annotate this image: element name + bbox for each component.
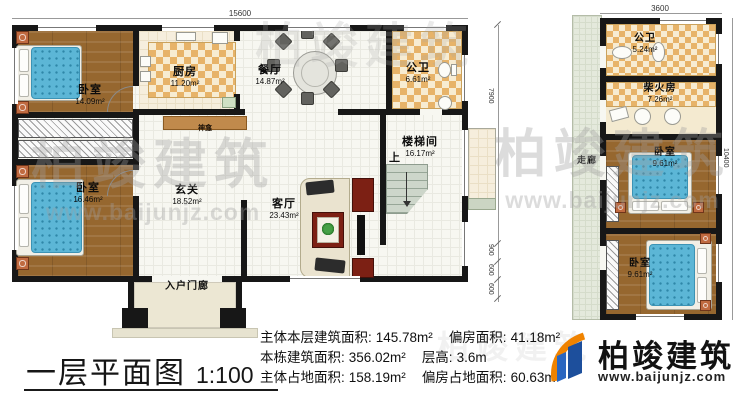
window (660, 18, 706, 24)
pillow (19, 217, 29, 247)
plan-scale: 1:100 (196, 362, 254, 388)
stove-burner (664, 108, 681, 125)
stats-row: 主体占地面积:158.19m²偏房占地面积:60.63m² (260, 368, 576, 388)
wall (133, 109, 245, 115)
dimension-label: 3600 (620, 4, 700, 13)
room-label-corridor: 走廊 (577, 153, 597, 166)
stair-up-arrow-icon (406, 172, 407, 202)
wall (241, 200, 247, 282)
window (162, 25, 214, 31)
dimension-label: 15600 (200, 9, 280, 18)
room-label-bedroom2: 卧室 16.46m² (53, 182, 123, 205)
dimension-line (600, 13, 722, 14)
fridge (212, 32, 228, 44)
door-opening (600, 46, 606, 68)
window (462, 130, 468, 196)
window (12, 186, 18, 250)
brand-url: www.baijunjz.com (598, 369, 726, 384)
room-label-side-bedroom3: 卧室 9.61m² (630, 147, 700, 169)
tv-cabinet (352, 178, 374, 212)
wall (600, 76, 722, 82)
shrine-label: 神龛 (198, 125, 212, 132)
room-label-bath: 公卫 6.61m² (383, 62, 453, 85)
plan-title-text: 一层平面图 (26, 357, 186, 390)
pillow (19, 49, 29, 72)
tv-screen (357, 215, 365, 255)
corridor-floor (572, 15, 602, 320)
window (716, 244, 722, 282)
dimension-line (12, 18, 468, 19)
shrine-cabinet: 神龛 (163, 116, 247, 130)
room-label-dining: 餐厅 14.87m² (235, 64, 305, 87)
window (288, 25, 350, 31)
wall (380, 115, 386, 245)
brand-logo-icon (548, 329, 594, 387)
closet-row (18, 119, 133, 138)
window (12, 48, 18, 104)
window (716, 34, 722, 64)
dimension-label: 900 (487, 244, 494, 256)
title-underline (24, 389, 278, 391)
stair-arrow-head-icon (403, 201, 411, 207)
window (462, 222, 468, 266)
closet-row (18, 140, 133, 158)
stove-burner (634, 108, 651, 125)
wall (133, 196, 139, 282)
pillow (697, 248, 707, 274)
room-label-foyer: 玄关 18.52m² (152, 184, 222, 207)
nightstand (693, 202, 704, 213)
window (404, 25, 446, 31)
dining-chair (301, 92, 314, 105)
pillow (661, 201, 688, 211)
dimension-label: 600 (487, 283, 494, 295)
bath-sink (438, 96, 452, 110)
plan-title: 一层平面图1:100 (26, 348, 254, 392)
nightstand (615, 202, 626, 213)
floor-plan-page: 神龛 (0, 0, 750, 400)
pillow (19, 74, 29, 97)
area-stats: 主体本层建筑面积:145.78m²偏房面积:41.18m² 本栋建筑面积:356… (260, 328, 576, 388)
window (290, 276, 360, 282)
wall (133, 25, 139, 86)
wall (338, 109, 386, 115)
nightstand (700, 300, 711, 311)
door-opening (600, 100, 606, 122)
dining-chair (335, 59, 348, 72)
wall (234, 25, 240, 41)
porch-step (112, 328, 258, 338)
nightstand (16, 31, 29, 44)
room-label-side-bath: 公卫 5.24m² (610, 33, 680, 55)
room-label-bedroom1: 卧室 14.09m² (55, 84, 125, 107)
room-label-firewood: 柴火房 7.26m² (625, 83, 695, 105)
nightstand (16, 257, 29, 270)
wall (12, 112, 139, 118)
bay-sill (468, 198, 496, 210)
stair-window-bay (468, 128, 496, 200)
porch-pillar (122, 308, 148, 328)
stats-row: 本栋建筑面积:356.02m²层高:3.6m (260, 348, 576, 368)
dimension-label: 7900 (487, 88, 494, 104)
porch-pillar (220, 308, 246, 328)
window (462, 55, 468, 101)
tv-cabinet (352, 258, 374, 278)
wardrobe (606, 166, 619, 222)
dimension-label: 10400 (722, 148, 729, 167)
nightstand (16, 165, 29, 178)
kitchen-counter (222, 97, 236, 108)
door-opening (420, 109, 442, 115)
nightstand (700, 233, 711, 244)
kitchen-sink (176, 32, 196, 41)
wall (600, 134, 722, 140)
pillow (632, 201, 659, 211)
window (38, 25, 96, 31)
room-label-living: 客厅 23.43m² (249, 198, 319, 221)
room-label-porch: 入户门廊 (147, 281, 227, 293)
dining-table-inner (301, 59, 329, 87)
door-opening (600, 156, 606, 180)
window (636, 314, 684, 320)
plant-icon (321, 222, 335, 236)
stair-up-label: 上 (389, 149, 400, 165)
room-label-side-bedroom4: 卧室 9.61m² (605, 258, 675, 280)
room-label-kitchen: 厨房 11.20m² (150, 66, 220, 89)
dimension-label: 600 (487, 264, 494, 276)
dimension-line (732, 18, 733, 320)
wall (12, 159, 139, 165)
pillow (19, 184, 29, 214)
stats-row: 主体本层建筑面积:145.78m²偏房面积:41.18m² (260, 328, 576, 348)
